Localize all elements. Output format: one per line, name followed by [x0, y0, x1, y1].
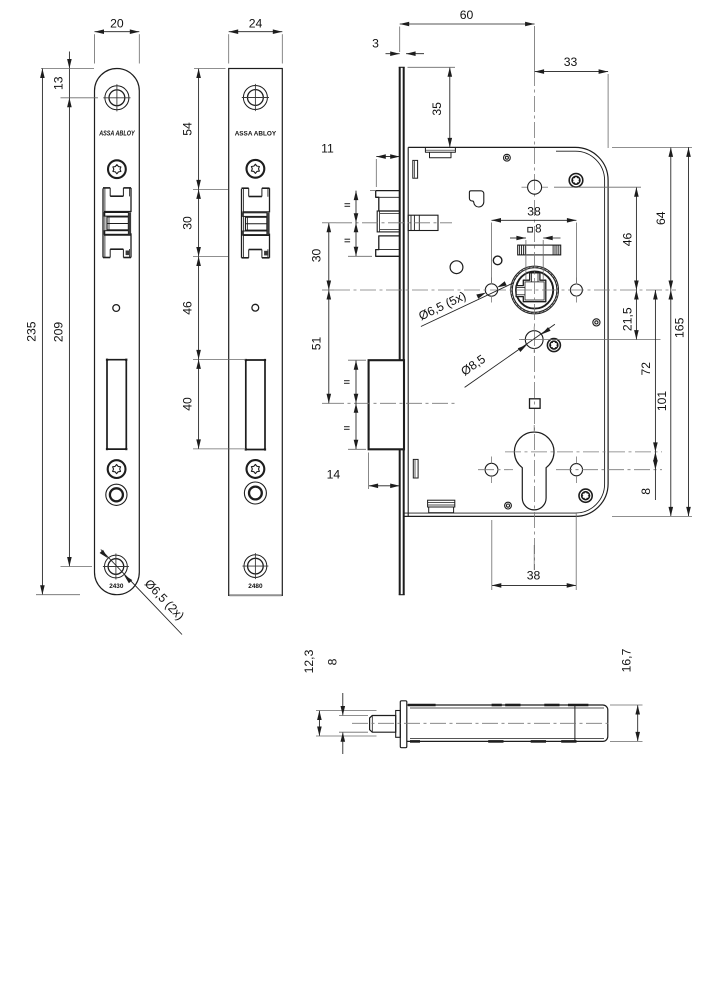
- svg-text:8: 8: [325, 658, 339, 665]
- svg-text:64: 64: [654, 211, 668, 225]
- svg-text:165: 165: [673, 317, 687, 338]
- svg-text:40: 40: [181, 397, 195, 411]
- svg-text:33: 33: [564, 55, 578, 69]
- svg-text:35: 35: [430, 102, 444, 116]
- svg-text:20: 20: [110, 17, 124, 31]
- svg-text:ASSA ABLOY: ASSA ABLOY: [98, 131, 135, 138]
- svg-text:21,5: 21,5: [621, 307, 635, 331]
- svg-text:46: 46: [181, 301, 195, 315]
- svg-text:46: 46: [620, 233, 634, 247]
- svg-text:12,3: 12,3: [302, 649, 316, 673]
- svg-text:8: 8: [639, 488, 653, 495]
- svg-text:101: 101: [655, 391, 669, 412]
- svg-text:209: 209: [51, 322, 65, 343]
- svg-text:60: 60: [460, 8, 474, 22]
- svg-text:3: 3: [372, 37, 379, 51]
- svg-text:ASSA ABLOY: ASSA ABLOY: [235, 130, 277, 137]
- svg-text:30: 30: [310, 249, 324, 263]
- svg-text:51: 51: [310, 337, 324, 351]
- svg-text:54: 54: [181, 122, 195, 136]
- svg-text:13: 13: [51, 76, 65, 90]
- svg-text:2480: 2480: [248, 583, 263, 590]
- svg-text:235: 235: [24, 321, 38, 342]
- svg-text:11: 11: [321, 142, 334, 156]
- svg-text:38: 38: [527, 205, 541, 219]
- svg-text:24: 24: [249, 17, 263, 31]
- svg-text:16,7: 16,7: [620, 648, 634, 672]
- svg-text:38: 38: [527, 569, 541, 583]
- svg-text:2430: 2430: [109, 583, 124, 590]
- svg-text:72: 72: [639, 362, 653, 376]
- svg-text:8: 8: [535, 223, 541, 235]
- svg-text:30: 30: [181, 216, 195, 230]
- svg-text:14: 14: [327, 468, 341, 482]
